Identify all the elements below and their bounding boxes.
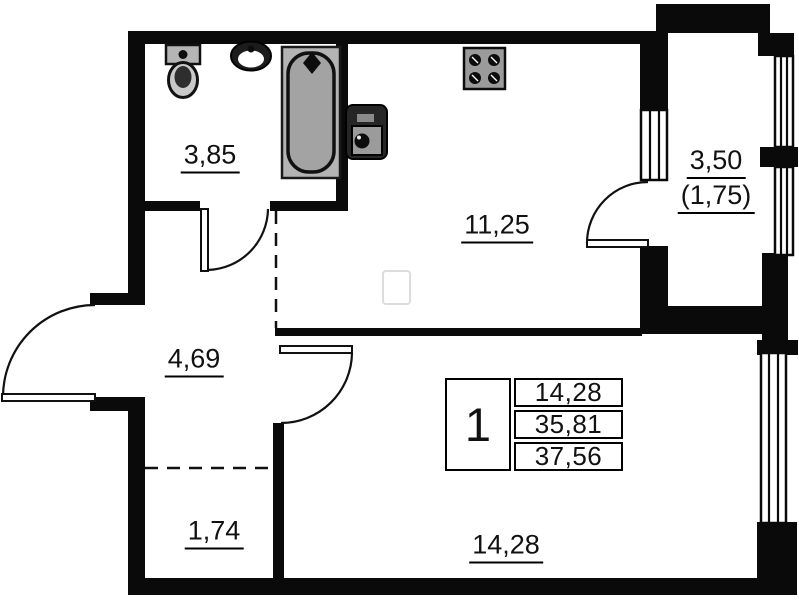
living-room-area-value: 14,28 xyxy=(469,529,543,564)
appliance-ghost-outline xyxy=(383,271,410,304)
wall-entry-jamb-top xyxy=(90,293,145,305)
rooms-count-cell: 1 xyxy=(445,378,511,471)
hallway-area-value: 4,69 xyxy=(165,343,224,378)
room-label-kitchen: 11,25 xyxy=(461,209,533,244)
kitchen-balcony-window xyxy=(641,110,667,180)
wall-right-upper-block xyxy=(758,33,794,56)
entry-door xyxy=(2,305,95,401)
wall-balcony-sill xyxy=(760,147,798,167)
room-label-balcony: 3,50 (1,75) xyxy=(678,144,755,214)
bathtub-icon xyxy=(282,47,340,178)
balcony-door xyxy=(587,182,648,247)
floor-plan: 3,85 11,25 3,50 (1,75) 4,69 1,74 14,28 1… xyxy=(0,0,799,600)
closet-area-value: 1,74 xyxy=(185,515,244,550)
wall-left-upper xyxy=(128,31,145,293)
wall-kitchen-balcony-upper xyxy=(640,33,668,110)
kitchen-sink-icon xyxy=(346,105,387,159)
wall-closet-east xyxy=(273,423,284,580)
room-label-bathroom: 3,85 xyxy=(181,139,240,174)
living-room-window xyxy=(761,353,786,523)
wall-right-column xyxy=(762,253,788,342)
living-area-cell: 14,28 xyxy=(514,378,623,407)
toilet-icon xyxy=(166,45,200,98)
stove-icon xyxy=(464,48,505,89)
balcony-window-lower xyxy=(775,167,793,255)
wall-bathroom-south-right xyxy=(270,201,348,211)
floor-plan-drawing xyxy=(0,0,799,600)
bathroom-door xyxy=(201,209,268,271)
balcony-area-reduced-value: (1,75) xyxy=(678,179,755,214)
living-room-door xyxy=(280,346,352,423)
kitchen-area-value: 11,25 xyxy=(461,209,533,244)
walls xyxy=(90,4,798,595)
bathroom-sink-icon xyxy=(231,42,271,71)
wall-kitchen-balcony-lower xyxy=(640,246,668,308)
wall-bottom xyxy=(128,578,796,595)
wall-living-top xyxy=(275,328,642,336)
wall-bottom-right-block xyxy=(757,522,797,595)
wall-top-right-block xyxy=(656,4,770,33)
balcony-area-value: 3,50 xyxy=(687,144,746,179)
total-area-cell: 37,56 xyxy=(514,442,623,471)
bathroom-area-value: 3,85 xyxy=(181,139,240,174)
room-label-hallway: 4,69 xyxy=(165,343,224,378)
room-label-closet: 1,74 xyxy=(185,515,244,550)
wall-balcony-bottom xyxy=(640,306,764,334)
apartment-info-table: 1 14,28 35,81 37,56 xyxy=(445,378,623,471)
area-values-column: 14,28 35,81 37,56 xyxy=(514,378,623,471)
wall-left-lower xyxy=(128,397,145,595)
balcony-window-upper xyxy=(775,56,793,147)
wall-top xyxy=(128,31,658,44)
dashed-boundaries xyxy=(145,211,276,468)
room-label-living-room: 14,28 xyxy=(469,529,543,564)
wall-bathroom-south-left xyxy=(145,201,200,211)
apartment-area-cell: 35,81 xyxy=(514,410,623,439)
